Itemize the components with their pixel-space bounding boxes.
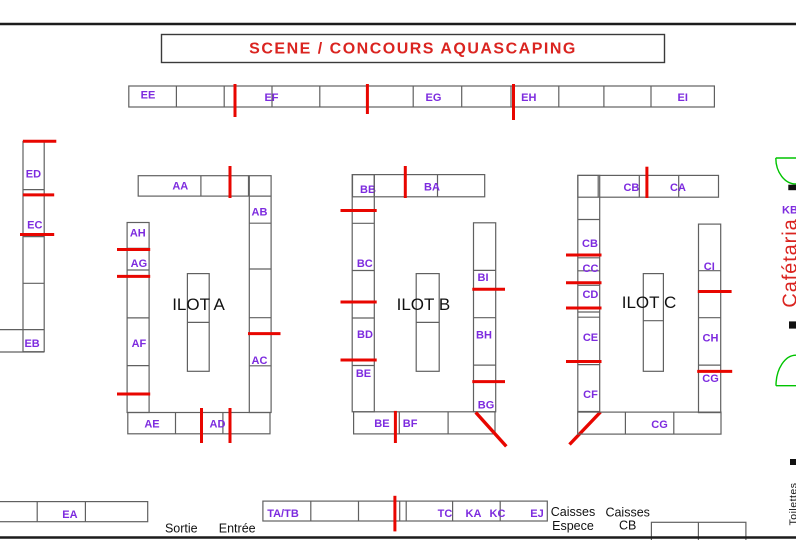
svg-text:TC: TC xyxy=(438,508,453,520)
svg-text:BI: BI xyxy=(478,272,489,284)
svg-text:AD: AD xyxy=(210,419,226,431)
svg-text:BD: BD xyxy=(357,329,373,341)
svg-text:EA: EA xyxy=(62,509,77,521)
svg-text:CB: CB xyxy=(619,519,636,533)
svg-text:KC: KC xyxy=(490,508,506,520)
svg-text:KB: KB xyxy=(782,205,796,217)
svg-text:EE: EE xyxy=(141,90,156,102)
svg-text:CA: CA xyxy=(670,182,686,194)
svg-text:AF: AF xyxy=(132,338,147,350)
svg-text:Entrée: Entrée xyxy=(219,522,256,536)
svg-text:AE: AE xyxy=(144,419,159,431)
svg-text:CE: CE xyxy=(583,332,598,344)
svg-text:BE: BE xyxy=(374,418,389,430)
svg-text:CB: CB xyxy=(582,238,598,250)
svg-text:TA/TB: TA/TB xyxy=(267,508,299,520)
svg-text:AC: AC xyxy=(252,355,268,367)
svg-text:ILOT A: ILOT A xyxy=(172,295,225,314)
svg-text:EF: EF xyxy=(264,92,278,104)
svg-text:EB: EB xyxy=(24,338,39,350)
svg-text:EC: EC xyxy=(27,220,42,232)
svg-text:CD: CD xyxy=(582,289,598,301)
svg-text:EI: EI xyxy=(677,92,687,104)
svg-text:Caisses: Caisses xyxy=(605,506,649,520)
svg-text:AH: AH xyxy=(130,228,146,240)
svg-text:BA: BA xyxy=(424,182,440,194)
svg-text:Caisses: Caisses xyxy=(551,505,595,519)
svg-text:ILOT C: ILOT C xyxy=(622,293,676,312)
svg-text:ILOT B: ILOT B xyxy=(397,295,451,314)
svg-text:KA: KA xyxy=(466,508,482,520)
svg-text:BB: BB xyxy=(360,184,376,196)
svg-text:ED: ED xyxy=(26,169,41,181)
svg-text:CC: CC xyxy=(583,263,599,275)
svg-text:Sortie: Sortie xyxy=(165,522,198,536)
svg-text:AG: AG xyxy=(131,258,148,270)
svg-text:Cafétaria: Cafétaria xyxy=(779,218,796,307)
svg-text:CG: CG xyxy=(651,419,668,431)
svg-text:CG: CG xyxy=(702,373,719,385)
svg-text:AA: AA xyxy=(172,181,188,193)
svg-text:CF: CF xyxy=(583,389,598,401)
svg-text:EG: EG xyxy=(426,92,442,104)
svg-text:CH: CH xyxy=(703,332,719,344)
svg-text:EH: EH xyxy=(521,92,536,104)
svg-text:CI: CI xyxy=(704,261,715,273)
svg-text:BF: BF xyxy=(403,418,418,430)
svg-text:BG: BG xyxy=(478,400,495,412)
svg-text:SCENE / CONCOURS AQUASCAPING: SCENE / CONCOURS AQUASCAPING xyxy=(249,41,577,58)
svg-text:BH: BH xyxy=(476,329,492,341)
svg-text:BC: BC xyxy=(357,258,373,270)
svg-text:AB: AB xyxy=(252,207,268,219)
svg-text:Espece: Espece xyxy=(552,519,594,533)
svg-text:Toilettes: Toilettes xyxy=(787,482,796,525)
svg-text:BE: BE xyxy=(356,368,371,380)
svg-text:CB: CB xyxy=(623,182,639,194)
svg-text:EJ: EJ xyxy=(530,508,543,520)
